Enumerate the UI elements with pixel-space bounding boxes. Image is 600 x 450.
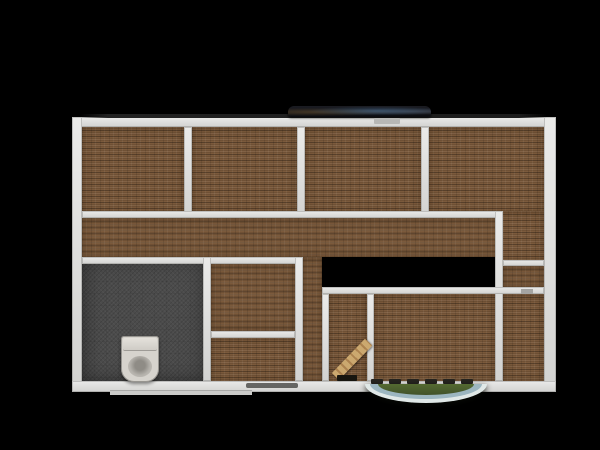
room-top-right[interactable] <box>429 127 544 215</box>
stair-threshold <box>337 375 357 381</box>
wall-stair-room-left <box>322 294 329 381</box>
wall-hallway-top <box>82 211 499 218</box>
room-top-right-ext[interactable] <box>499 211 544 263</box>
wall-mid-horizontal <box>322 287 544 294</box>
wall-stair-room-right <box>367 294 374 381</box>
wall-outer-left <box>72 117 82 392</box>
bottom-wall-smudge <box>246 383 298 388</box>
wall-right-vertical <box>495 211 503 381</box>
room-top-mid-left[interactable] <box>192 127 297 215</box>
wall-top-rooms-2-3 <box>297 127 305 218</box>
wall-storage-divider <box>211 331 295 338</box>
hallway[interactable] <box>82 218 499 257</box>
right-door-seam <box>521 289 533 294</box>
wall-bathroom-right <box>203 257 211 381</box>
floorplan-canvas[interactable] <box>0 0 600 450</box>
bottom-window-sill <box>110 390 252 395</box>
room-top-left[interactable] <box>82 127 184 215</box>
entry-porch[interactable] <box>365 384 487 403</box>
room-right-strip[interactable] <box>503 266 544 287</box>
wall-storage-right <box>295 257 303 381</box>
wall-right-upper <box>503 260 544 266</box>
wall-top-rooms-1-2 <box>184 127 192 218</box>
room-bottom-right[interactable] <box>503 294 544 382</box>
wall-outer-top <box>72 117 556 127</box>
balcony-door-mark <box>374 118 400 124</box>
storage-room-upper[interactable] <box>211 264 295 331</box>
room-bottom-mid[interactable] <box>374 294 495 382</box>
wall-hallway-bottom <box>82 257 303 264</box>
toilet[interactable] <box>121 336 159 382</box>
room-top-mid-right[interactable] <box>305 127 421 215</box>
hall-passage[interactable] <box>303 257 322 382</box>
wall-top-rooms-3-4 <box>421 127 429 218</box>
balcony-terrace[interactable] <box>288 106 431 117</box>
storage-room-lower[interactable] <box>211 338 295 382</box>
wall-outer-right <box>544 117 556 392</box>
